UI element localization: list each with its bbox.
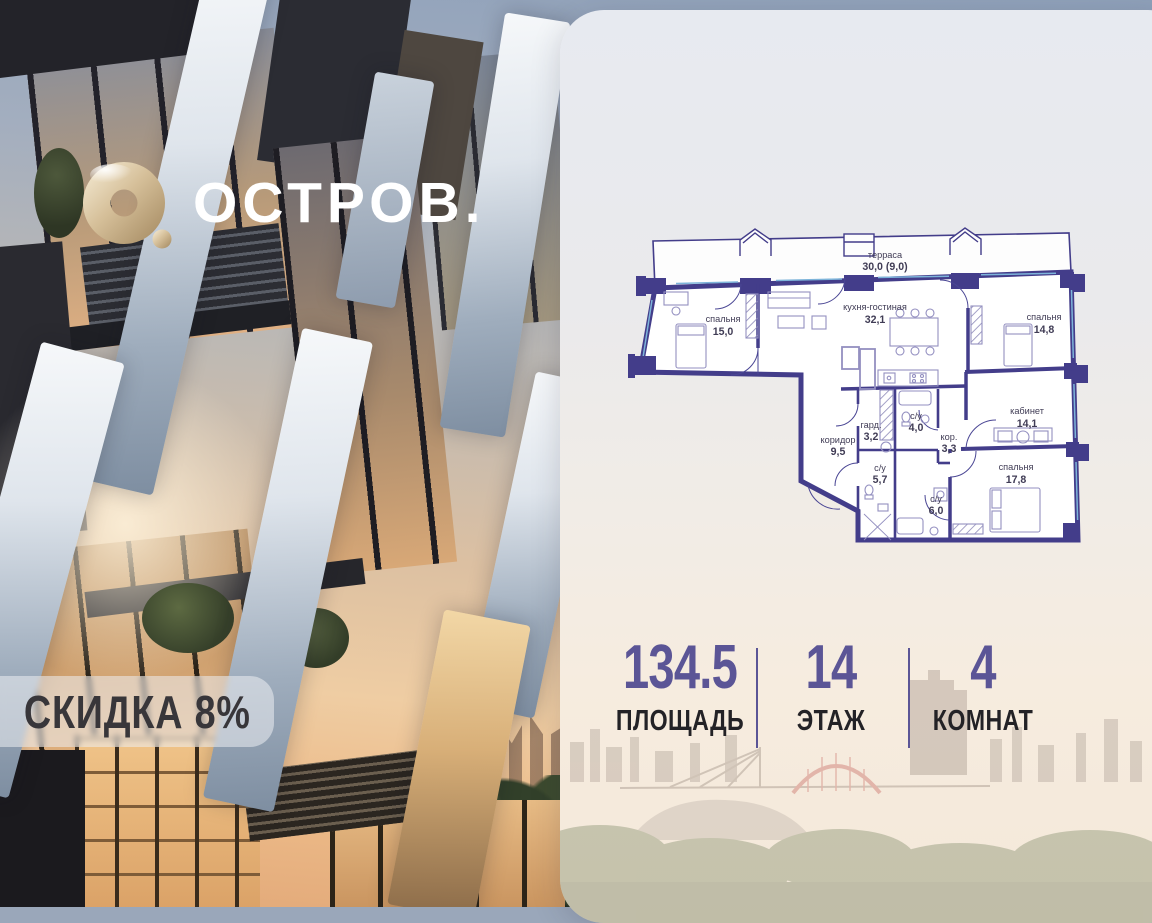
svg-text:спальня: спальня <box>706 314 741 324</box>
svg-text:17,8: 17,8 <box>1006 474 1027 486</box>
svg-text:с/у: с/у <box>910 411 922 421</box>
brand-wordmark: ОСТРОВ. <box>193 175 486 232</box>
svg-text:14,1: 14,1 <box>1017 418 1038 430</box>
svg-text:3,2: 3,2 <box>864 431 879 443</box>
apartment-card: терраса 30,0 (9,0) спальня 15,0 кухня-го… <box>560 10 1152 923</box>
discount-badge-label: СКИДКА 8% <box>24 685 251 739</box>
discount-badge: СКИДКА 8% <box>0 676 274 747</box>
svg-text:5,7: 5,7 <box>873 474 888 486</box>
svg-text:15,0: 15,0 <box>713 326 734 338</box>
svg-text:спальня: спальня <box>1027 312 1062 322</box>
svg-text:спальня: спальня <box>999 462 1034 472</box>
svg-text:9,5: 9,5 <box>831 446 846 458</box>
svg-text:32,1: 32,1 <box>865 314 886 326</box>
svg-text:терраса: терраса <box>868 250 903 260</box>
svg-text:4,0: 4,0 <box>909 422 924 434</box>
floor-plan: терраса 30,0 (9,0) спальня 15,0 кухня-го… <box>628 218 1098 558</box>
svg-text:3,3: 3,3 <box>942 443 957 455</box>
stat-rooms-label: КОМНАТ <box>895 707 1071 735</box>
svg-text:гард.: гард. <box>860 420 881 430</box>
stat-rooms: 4 КОМНАТ <box>873 638 1093 735</box>
svg-text:кухня-гостиная: кухня-гостиная <box>843 302 907 312</box>
svg-text:6,0: 6,0 <box>929 505 944 517</box>
balcony-plant <box>142 583 234 653</box>
logo-o-icon <box>82 158 177 253</box>
stat-rooms-value: 4 <box>899 638 1066 698</box>
balcony-plant <box>34 148 84 238</box>
svg-text:кор.: кор. <box>941 432 958 442</box>
svg-text:с/у: с/у <box>874 463 886 473</box>
svg-text:14,8: 14,8 <box>1034 324 1055 336</box>
svg-text:кабинет: кабинет <box>1010 406 1045 416</box>
svg-text:30,0 (9,0): 30,0 (9,0) <box>862 261 907 273</box>
svg-text:коридор: коридор <box>820 435 855 445</box>
svg-text:с/у: с/у <box>930 494 942 504</box>
